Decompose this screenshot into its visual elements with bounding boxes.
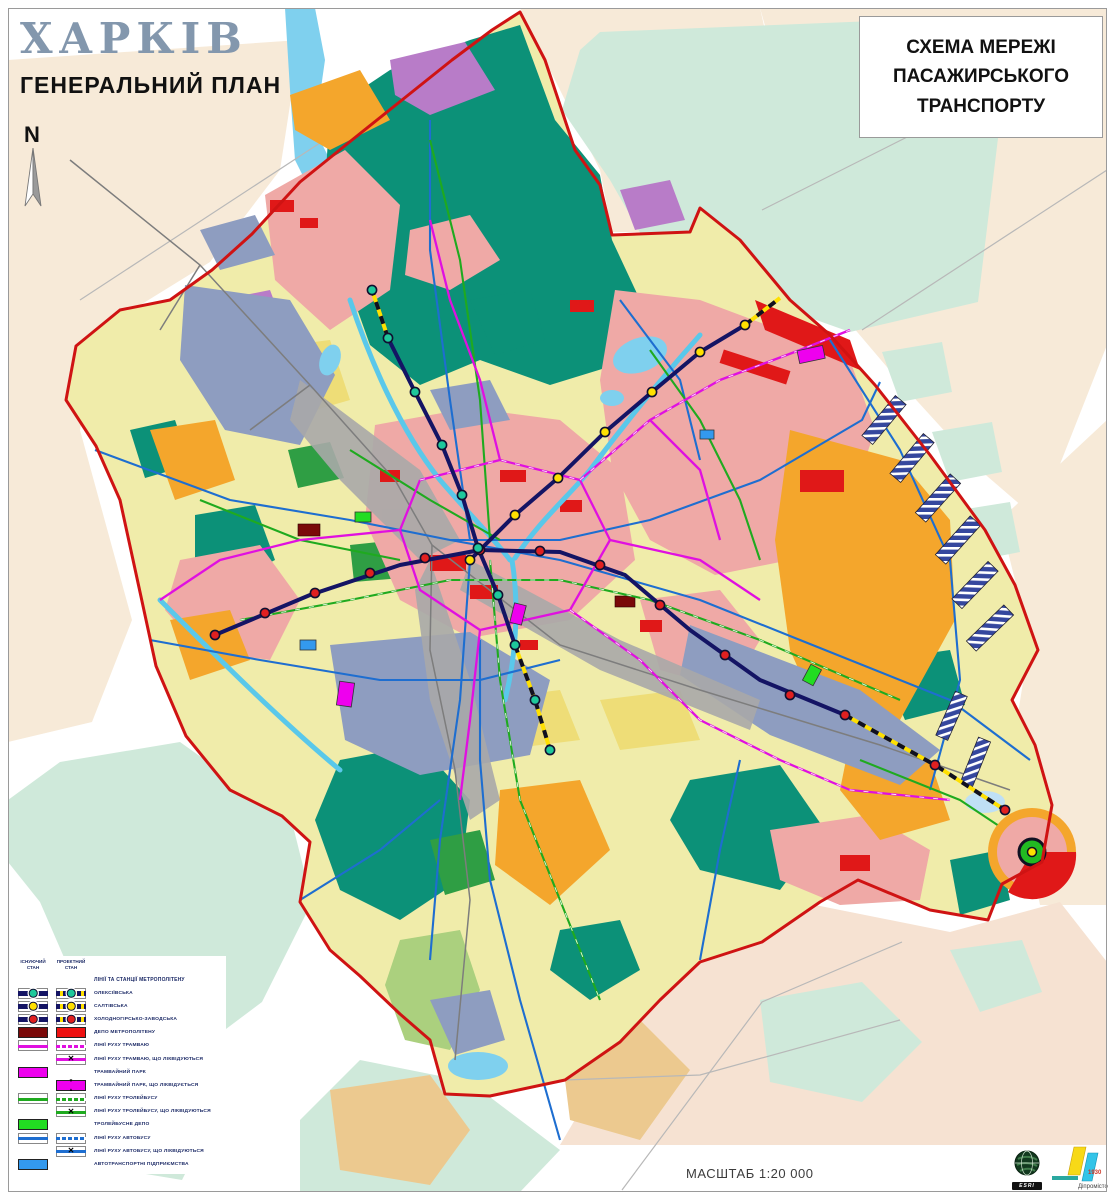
- legend-swatch-projected: [56, 1067, 86, 1078]
- legend-rows: ЛІНІЇ ТА СТАНЦІЇ МЕТРОПОЛІТЕНУ ОЛЕКСІЇВС…: [16, 974, 224, 1171]
- legend-item-label: ЛІНІЇ РУХУ АВТОБУСУ: [94, 1136, 151, 1141]
- plan-title: ГЕНЕРАЛЬНИЙ ПЛАН: [20, 72, 281, 99]
- legend-item: ХОЛОДНОГІРСЬКО-ЗАВОДСЬКА: [16, 1013, 224, 1026]
- legend-swatch-existing: [18, 1119, 48, 1130]
- legend-item-label: ТРОЛЕЙБУСНЕ ДЕПО: [94, 1122, 149, 1127]
- map-sheet: ХАРКІВ ГЕНЕРАЛЬНИЙ ПЛАН N СХЕМА МЕРЕЖІ П…: [0, 0, 1115, 1200]
- legend-item: ЛІНІЇ РУХУ ТРАМВАЮ, ЩО ЛІКВІДУЮТЬСЯ: [16, 1052, 224, 1065]
- city-title: ХАРКІВ: [20, 18, 281, 60]
- legend-item: ТРОЛЕЙБУСНЕ ДЕПО: [16, 1118, 224, 1131]
- legend-item: САЛТІВСЬКА: [16, 1000, 224, 1013]
- title-block: ХАРКІВ ГЕНЕРАЛЬНИЙ ПЛАН: [20, 18, 281, 99]
- legend-item: ТРАМВАЙНИЙ ПАРК: [16, 1066, 224, 1079]
- dipromisto-logo: 1930 Діпромісто: [1050, 1144, 1108, 1197]
- legend-swatch-projected: [56, 1080, 86, 1091]
- legend-swatch-projected: [56, 1027, 86, 1038]
- legend-swatch-projected: [56, 1119, 86, 1130]
- esri-logo-label: ESRI: [1012, 1182, 1042, 1190]
- legend-swatch-projected: [56, 1040, 86, 1051]
- legend-swatch-projected: [56, 975, 86, 986]
- legend-item-label: ТРАМВАЙНИЙ ПАРК, ЩО ЛІКВІДУЄТЬСЯ: [94, 1083, 198, 1088]
- dipromisto-logo-icon: 1930 Діпромісто: [1050, 1144, 1108, 1192]
- legend-item: ЛІНІЇ РУХУ ТРОЛЕЙБУСУ: [16, 1092, 224, 1105]
- legend-swatch-projected: [56, 1133, 86, 1144]
- legend-item: АВТОТРАНСПОРТНІ ПІДПРИЄМСТВА: [16, 1158, 224, 1171]
- legend-item-label: ЛІНІЇ РУХУ АВТОБУСУ, ЩО ЛІКВІДУЮТЬСЯ: [94, 1149, 204, 1154]
- legend-item-label: ЛІНІЇ РУХУ ТРОЛЕЙБУСУ, ЩО ЛІКВІДУЮТЬСЯ: [94, 1109, 211, 1114]
- legend-swatch-existing: [18, 1159, 48, 1170]
- legend-item-label: ЛІНІЇ ТА СТАНЦІЇ МЕТРОПОЛІТЕНУ: [94, 977, 185, 983]
- legend-swatch-projected: [56, 1159, 86, 1170]
- legend-swatch-existing: [18, 988, 48, 999]
- legend-item: ОЛЕКСІЇВСЬКА: [16, 986, 224, 999]
- legend-swatch-existing: [18, 1001, 48, 1012]
- legend-col-projected: ПРОЕКТНИЙ СТАН: [56, 959, 86, 970]
- legend-col-existing: ІСНУЮЧИЙ СТАН: [18, 959, 48, 970]
- legend-swatch-existing: [18, 1146, 48, 1157]
- dipromisto-year-text: 1930: [1088, 1170, 1102, 1176]
- legend-item-label: ЛІНІЇ РУХУ ТРОЛЕЙБУСУ: [94, 1096, 158, 1101]
- legend-item-label: ОЛЕКСІЇВСЬКА: [94, 991, 133, 996]
- legend-item-label: ЛІНІЇ РУХУ ТРАМВАЮ: [94, 1043, 149, 1048]
- legend-item-label: ЛІНІЇ РУХУ ТРАМВАЮ, ЩО ЛІКВІДУЮТЬСЯ: [94, 1057, 203, 1062]
- legend-item: ЛІНІЇ РУХУ ТРАМВАЮ: [16, 1039, 224, 1052]
- legend-item-label: ДЕПО МЕТРОПОЛІТЕНУ: [94, 1030, 155, 1035]
- legend-swatch-projected: [56, 1001, 86, 1012]
- legend-item: ТРАМВАЙНИЙ ПАРК, ЩО ЛІКВІДУЄТЬСЯ: [16, 1079, 224, 1092]
- legend-item-label: ТРАМВАЙНИЙ ПАРК: [94, 1070, 146, 1075]
- legend-swatch-existing: [18, 1027, 48, 1038]
- legend-swatch-projected: [56, 988, 86, 999]
- legend-swatch-existing: [18, 1080, 48, 1091]
- legend-item: ЛІНІЇ РУХУ АВТОБУСУ, ЩО ЛІКВІДУЮТЬСЯ: [16, 1145, 224, 1158]
- legend-swatch-existing: [18, 1093, 48, 1104]
- legend-item: ЛІНІЇ РУХУ АВТОБУСУ: [16, 1132, 224, 1145]
- legend-swatch-existing: [18, 1054, 48, 1065]
- scheme-title-box: СХЕМА МЕРЕЖІ ПАСАЖИРСЬКОГО ТРАНСПОРТУ: [859, 16, 1103, 138]
- legend-item-label: САЛТІВСЬКА: [94, 1004, 128, 1009]
- legend-item-label: АВТОТРАНСПОРТНІ ПІДПРИЄМСТВА: [94, 1162, 189, 1167]
- legend-item: ЛІНІЇ РУХУ ТРОЛЕЙБУСУ, ЩО ЛІКВІДУЮТЬСЯ: [16, 1105, 224, 1118]
- legend-swatch-projected: [56, 1146, 86, 1157]
- legend-swatch-projected: [56, 1054, 86, 1065]
- legend: ІСНУЮЧИЙ СТАН ПРОЕКТНИЙ СТАН ЛІНІЇ ТА СТ…: [14, 956, 226, 1174]
- dipromisto-name-text: Діпромісто: [1078, 1184, 1108, 1190]
- north-arrow-icon: [22, 148, 44, 210]
- legend-swatch-projected: [56, 1106, 86, 1117]
- north-label: N: [24, 122, 62, 148]
- esri-globe-icon: [1014, 1150, 1040, 1176]
- legend-item-label: ХОЛОДНОГІРСЬКО-ЗАВОДСЬКА: [94, 1017, 177, 1022]
- legend-swatch-existing: [18, 1040, 48, 1051]
- legend-swatch-existing: [18, 1106, 48, 1117]
- esri-logo: ESRI: [1012, 1150, 1042, 1190]
- legend-swatch-existing: [18, 1133, 48, 1144]
- legend-swatch-existing: [18, 1067, 48, 1078]
- legend-item: ЛІНІЇ ТА СТАНЦІЇ МЕТРОПОЛІТЕНУ: [16, 974, 224, 986]
- north-arrow: N: [22, 122, 62, 215]
- legend-swatch-projected: [56, 1014, 86, 1025]
- legend-swatch-projected: [56, 1093, 86, 1104]
- legend-swatch-existing: [18, 975, 48, 986]
- legend-swatch-existing: [18, 1014, 48, 1025]
- legend-item: ДЕПО МЕТРОПОЛІТЕНУ: [16, 1026, 224, 1039]
- legend-column-headers: ІСНУЮЧИЙ СТАН ПРОЕКТНИЙ СТАН: [16, 959, 224, 970]
- scale-label: МАСШТАБ 1:20 000: [686, 1166, 813, 1181]
